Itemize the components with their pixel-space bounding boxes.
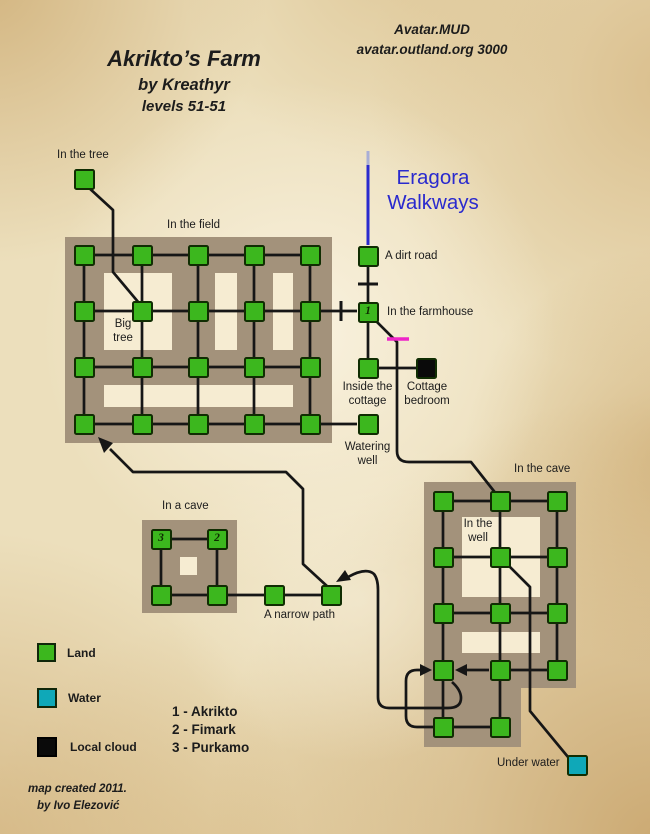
brand-block: Avatar.MUD avatar.outland.org 3000	[332, 22, 532, 57]
node-cave	[490, 660, 511, 681]
label-eragora-walkways: Eragora Walkways	[380, 165, 486, 215]
node-field	[74, 301, 95, 322]
label-in-the-cave: In the cave	[514, 463, 570, 477]
field-cutout	[215, 273, 237, 350]
marker-purkamo: 3	[158, 533, 164, 545]
label-narrow-path: A narrow path	[264, 609, 335, 623]
node-small-cave	[207, 585, 228, 606]
title-block: Akrikto’s Farm by Kreathyr levels 51-51	[84, 46, 284, 115]
label-in-the-well: In the well	[448, 518, 508, 545]
node-small-cave	[151, 585, 172, 606]
arrowhead-into-narrow-path	[336, 570, 351, 582]
node-field	[74, 414, 95, 435]
node-dirt-road	[358, 246, 379, 267]
node-field	[300, 301, 321, 322]
node-field	[300, 357, 321, 378]
label-under-water: Under water	[497, 757, 560, 771]
node-field	[188, 414, 209, 435]
node-field	[188, 245, 209, 266]
node-narrow-path	[321, 585, 342, 606]
page-title: Akrikto’s Farm	[84, 46, 284, 72]
node-field	[244, 301, 265, 322]
label-big-tree: Big tree	[101, 318, 145, 345]
label-farmhouse: In the farmhouse	[387, 306, 473, 320]
marker-akrikto: 1	[365, 306, 371, 318]
node-narrow-path	[264, 585, 285, 606]
node-inside-cottage	[358, 358, 379, 379]
node-field	[300, 245, 321, 266]
brand-name: Avatar.MUD	[332, 22, 532, 37]
map-credit-line2: by Ivo Elezović	[37, 800, 119, 812]
node-cave	[547, 491, 568, 512]
small-cave-cutout	[180, 557, 197, 575]
node-field	[244, 245, 265, 266]
npc-key-fimark: 2 - Fimark	[172, 722, 236, 737]
map-canvas: 1 3 2 Akrikto’s Farm by Kreathyr levels …	[0, 0, 650, 834]
node-field	[188, 357, 209, 378]
brand-address: avatar.outland.org 3000	[332, 42, 532, 57]
field-cutout	[273, 273, 293, 350]
label-watering-well: Watering well	[330, 441, 405, 468]
npc-key-purkamo: 3 - Purkamo	[172, 740, 249, 755]
field-cutout	[104, 385, 293, 407]
node-in-the-well	[490, 547, 511, 568]
node-field	[188, 301, 209, 322]
node-purkamo: 3	[151, 529, 172, 550]
marker-fimark: 2	[214, 533, 220, 545]
node-field	[74, 357, 95, 378]
node-field	[132, 245, 153, 266]
node-field	[74, 245, 95, 266]
label-dirt-road: A dirt road	[385, 250, 437, 264]
node-cottage-bedroom	[416, 358, 437, 379]
legend-swatch-local-cloud	[37, 737, 57, 757]
label-in-a-cave: In a cave	[162, 500, 209, 514]
node-cave	[433, 603, 454, 624]
node-cave	[490, 717, 511, 738]
title-byline: by Kreathyr	[84, 76, 284, 95]
node-cave	[490, 491, 511, 512]
label-cottage-bedroom: Cottage bedroom	[391, 381, 463, 408]
node-field	[300, 414, 321, 435]
node-field	[244, 414, 265, 435]
node-field	[132, 414, 153, 435]
node-field	[132, 357, 153, 378]
node-cave	[490, 603, 511, 624]
node-cave	[547, 547, 568, 568]
label-in-the-tree: In the tree	[57, 149, 109, 163]
node-cave	[433, 717, 454, 738]
node-farmhouse: 1	[358, 302, 379, 323]
legend-swatch-land	[37, 643, 56, 662]
legend-label-land: Land	[67, 646, 96, 660]
node-field	[244, 357, 265, 378]
node-cave	[547, 603, 568, 624]
cave-cutout	[462, 632, 540, 653]
node-watering-well	[358, 414, 379, 435]
npc-key-akrikto: 1 - Akrikto	[172, 704, 238, 719]
legend-label-water: Water	[68, 691, 101, 705]
node-cave	[433, 547, 454, 568]
map-credit-line1: map created 2011.	[28, 783, 127, 795]
node-cave	[433, 491, 454, 512]
node-cave	[433, 660, 454, 681]
label-in-the-field: In the field	[167, 219, 220, 233]
node-fimark: 2	[207, 529, 228, 550]
title-levels: levels 51-51	[84, 98, 284, 115]
legend-swatch-water	[37, 688, 57, 708]
node-cave	[547, 660, 568, 681]
legend-label-local-cloud: Local cloud	[70, 740, 137, 754]
node-in-the-tree	[74, 169, 95, 190]
node-under-water	[567, 755, 588, 776]
